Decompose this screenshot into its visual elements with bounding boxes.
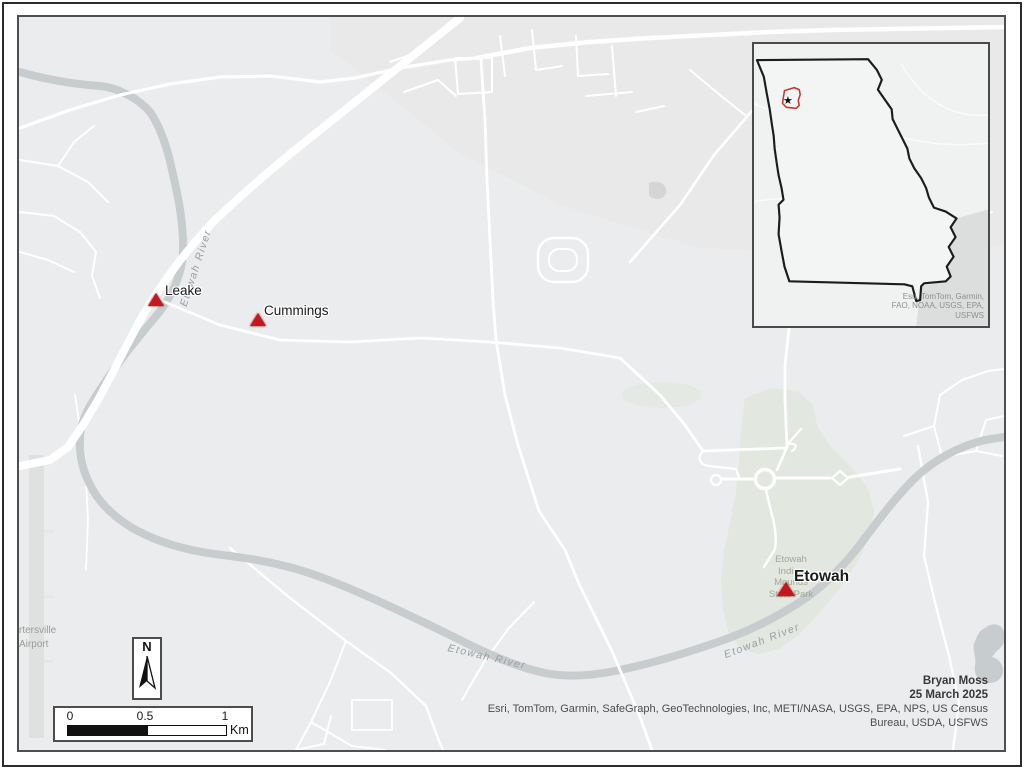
inset-locator-map: ★ Esri, TomTom, Garmin, FAO, NOAA, USGS,… bbox=[752, 42, 990, 328]
site-label-leake: Leake bbox=[165, 283, 202, 298]
scale-tick-mid: 0.5 bbox=[133, 709, 157, 723]
map-frame: Etowah River Etowah River Etowah River E… bbox=[17, 15, 1006, 752]
park-label-line: Etowah bbox=[751, 554, 831, 566]
attribution-line: Bureau, USDA, USFWS bbox=[488, 716, 988, 730]
inset-attribution: Esri, TomTom, Garmin, FAO, NOAA, USGS, E… bbox=[892, 292, 984, 321]
scale-tick-1: 1 bbox=[219, 709, 231, 723]
north-arrow: N bbox=[132, 637, 162, 700]
scale-unit: Km bbox=[230, 723, 249, 737]
scale-segment-empty bbox=[147, 725, 227, 736]
north-arrow-icon bbox=[136, 654, 158, 692]
airport-label-line: rtersville bbox=[19, 624, 56, 638]
site-label-etowah: Etowah bbox=[794, 568, 849, 586]
scale-tick-0: 0 bbox=[64, 709, 76, 723]
site-marker-etowah bbox=[777, 582, 795, 596]
scale-segment-filled bbox=[67, 725, 147, 736]
author-name: Bryan Moss bbox=[488, 674, 988, 688]
map-credits: Bryan Moss 25 March 2025 Esri, TomTom, G… bbox=[488, 674, 988, 730]
inset-attribution-line: Esri, TomTom, Garmin, bbox=[892, 292, 984, 302]
map-document: Etowah River Etowah River Etowah River E… bbox=[0, 0, 1024, 769]
inset-attribution-line: USFWS bbox=[892, 311, 984, 321]
inset-canvas bbox=[754, 44, 988, 326]
inset-attribution-line: FAO, NOAA, USGS, EPA, bbox=[892, 301, 984, 311]
north-arrow-letter: N bbox=[134, 640, 160, 654]
study-site-star-icon: ★ bbox=[783, 96, 793, 107]
site-marker-leake bbox=[148, 293, 164, 306]
site-label-cummings: Cummings bbox=[264, 303, 329, 318]
map-date: 25 March 2025 bbox=[488, 688, 988, 702]
scale-bar: 0 0.5 1 Km bbox=[53, 706, 253, 742]
airport-label-line: Airport bbox=[19, 638, 56, 652]
attribution-line: Esri, TomTom, Garmin, SafeGraph, GeoTech… bbox=[488, 702, 988, 716]
green-area bbox=[622, 382, 702, 408]
airport-label: rtersville Airport bbox=[19, 624, 56, 652]
